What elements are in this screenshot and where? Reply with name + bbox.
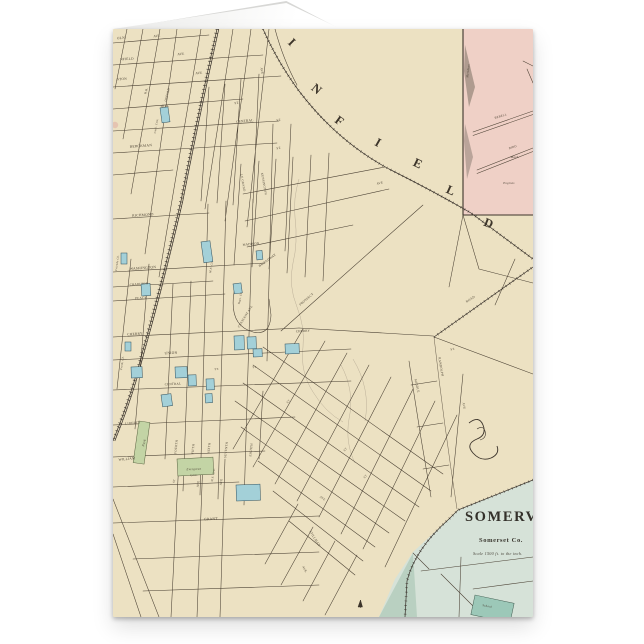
building-block	[161, 394, 173, 407]
street-label: ST.	[234, 101, 239, 105]
street-label: HILL	[160, 104, 169, 109]
building-block	[160, 107, 170, 123]
building-block	[256, 250, 263, 260]
building-block	[188, 375, 196, 386]
street-label: AVE	[153, 34, 160, 38]
vintage-map-svg: OLNAVENFIELDAVESTONAVEAVEHILLST.CENTRALB…	[113, 29, 533, 617]
street-label: CHERRY	[296, 329, 311, 334]
street-label: ST.	[252, 365, 257, 369]
somerville-title: SOMERVILLE	[465, 509, 533, 525]
street-label: ST.	[276, 118, 281, 122]
card-back-fold	[113, 3, 341, 29]
street-label: UNION	[164, 351, 177, 356]
building-block	[125, 342, 131, 351]
street-label: AVE	[219, 478, 224, 485]
greeting-card-front: OLNAVENFIELDAVESTONAVEAVEHILLST.CENTRALB…	[113, 29, 533, 617]
street-label: Engines	[502, 181, 515, 185]
building-block	[175, 367, 187, 378]
street-label: ST.	[276, 146, 281, 150]
street-label: Cem.	[190, 473, 198, 477]
building-block	[285, 344, 299, 354]
street-label: STON	[117, 77, 127, 82]
street-label: Mach.	[510, 155, 520, 159]
street-label: GRANT	[204, 517, 218, 522]
building-block	[206, 379, 214, 390]
product-photo: OLNAVENFIELDAVESTONAVEAVEHILLST.CENTRALB…	[0, 0, 644, 644]
building-block	[236, 484, 261, 501]
building-block	[247, 337, 256, 349]
somerville-county: Somerset Co.	[479, 537, 523, 544]
somerville-scale: Scale 1500 ft. to the inch.	[473, 551, 522, 556]
inset-region	[463, 29, 533, 215]
building-block	[121, 253, 127, 264]
building-block	[234, 336, 244, 350]
street-label: ST.	[450, 347, 455, 352]
street-label: ST.	[214, 367, 219, 371]
street-label: ST	[172, 479, 176, 483]
building-block	[205, 394, 213, 403]
street-label: AVE	[177, 52, 184, 56]
street-label: PEACE	[135, 296, 147, 301]
building-block	[253, 349, 262, 357]
street-label: AVE	[196, 480, 201, 487]
street-label: Evergreen	[185, 467, 201, 472]
street-label: OLN	[117, 36, 125, 41]
building-block	[131, 367, 142, 378]
street-label: AVE	[195, 71, 202, 75]
